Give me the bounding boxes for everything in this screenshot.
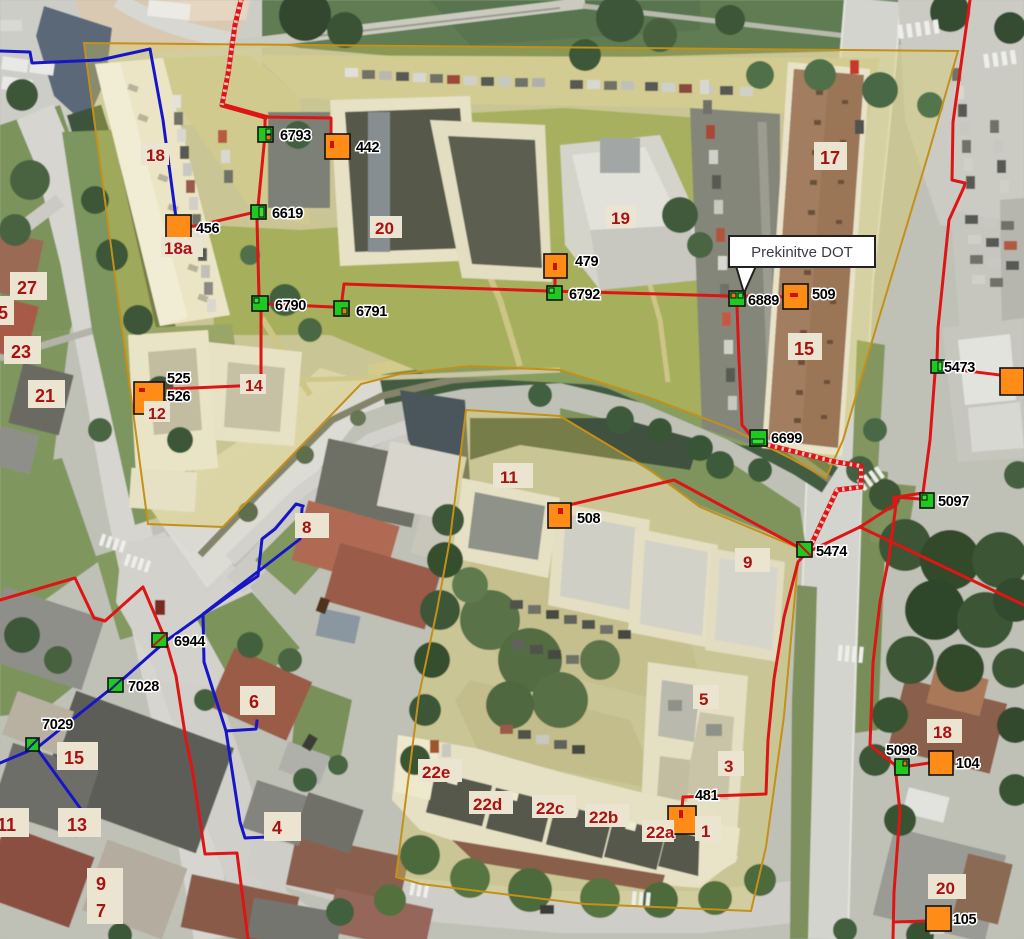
svg-text:15: 15 bbox=[64, 748, 84, 768]
svg-text:508: 508 bbox=[577, 511, 601, 527]
svg-text:22e: 22e bbox=[422, 763, 450, 782]
svg-text:5: 5 bbox=[0, 303, 8, 323]
svg-text:21: 21 bbox=[35, 386, 55, 406]
svg-text:526: 526 bbox=[167, 389, 191, 405]
svg-text:18: 18 bbox=[146, 146, 165, 165]
svg-text:5097: 5097 bbox=[938, 494, 969, 510]
svg-text:7029: 7029 bbox=[42, 717, 73, 733]
svg-text:11: 11 bbox=[500, 468, 518, 487]
svg-text:19: 19 bbox=[611, 209, 630, 228]
svg-text:22b: 22b bbox=[589, 808, 618, 827]
svg-text:Prekinitve DOT: Prekinitve DOT bbox=[751, 244, 853, 261]
svg-text:22a: 22a bbox=[646, 823, 675, 842]
svg-text:5098: 5098 bbox=[886, 743, 917, 759]
svg-text:479: 479 bbox=[575, 254, 599, 270]
svg-text:9: 9 bbox=[96, 874, 106, 894]
svg-text:4: 4 bbox=[272, 818, 282, 838]
svg-text:14: 14 bbox=[245, 378, 263, 395]
svg-text:9: 9 bbox=[743, 553, 752, 572]
svg-text:22d: 22d bbox=[473, 795, 502, 814]
svg-text:18: 18 bbox=[933, 723, 952, 742]
svg-text:6791: 6791 bbox=[356, 304, 387, 320]
svg-text:456: 456 bbox=[196, 221, 220, 237]
svg-text:13: 13 bbox=[67, 815, 87, 835]
svg-text:27: 27 bbox=[17, 278, 37, 298]
svg-text:104: 104 bbox=[956, 756, 980, 772]
svg-text:23: 23 bbox=[11, 342, 31, 362]
svg-text:3: 3 bbox=[724, 757, 733, 776]
svg-text:509: 509 bbox=[812, 287, 836, 303]
svg-text:6792: 6792 bbox=[569, 287, 600, 303]
svg-text:20: 20 bbox=[375, 219, 394, 238]
svg-text:105: 105 bbox=[953, 912, 977, 928]
svg-text:6619: 6619 bbox=[272, 206, 303, 222]
svg-text:481: 481 bbox=[695, 788, 719, 804]
svg-text:5: 5 bbox=[699, 690, 708, 709]
svg-text:8: 8 bbox=[302, 518, 311, 537]
svg-text:15: 15 bbox=[794, 339, 814, 359]
svg-text:6944: 6944 bbox=[174, 634, 205, 650]
svg-text:6889: 6889 bbox=[748, 293, 779, 309]
svg-text:525: 525 bbox=[167, 371, 191, 387]
svg-text:7: 7 bbox=[96, 901, 106, 921]
svg-text:7028: 7028 bbox=[128, 679, 159, 695]
svg-text:6699: 6699 bbox=[771, 431, 802, 447]
svg-text:1: 1 bbox=[701, 822, 710, 841]
svg-text:18a: 18a bbox=[164, 239, 193, 258]
svg-text:6: 6 bbox=[249, 692, 259, 712]
svg-text:442: 442 bbox=[356, 140, 380, 156]
svg-text:6790: 6790 bbox=[275, 298, 306, 314]
svg-text:5473: 5473 bbox=[944, 360, 975, 376]
svg-text:22c: 22c bbox=[536, 799, 564, 818]
svg-text:20: 20 bbox=[936, 879, 955, 898]
svg-text:17: 17 bbox=[820, 148, 840, 168]
svg-text:12: 12 bbox=[148, 406, 166, 423]
svg-text:11: 11 bbox=[0, 815, 16, 835]
svg-text:6793: 6793 bbox=[280, 128, 311, 144]
svg-text:5474: 5474 bbox=[816, 544, 847, 560]
